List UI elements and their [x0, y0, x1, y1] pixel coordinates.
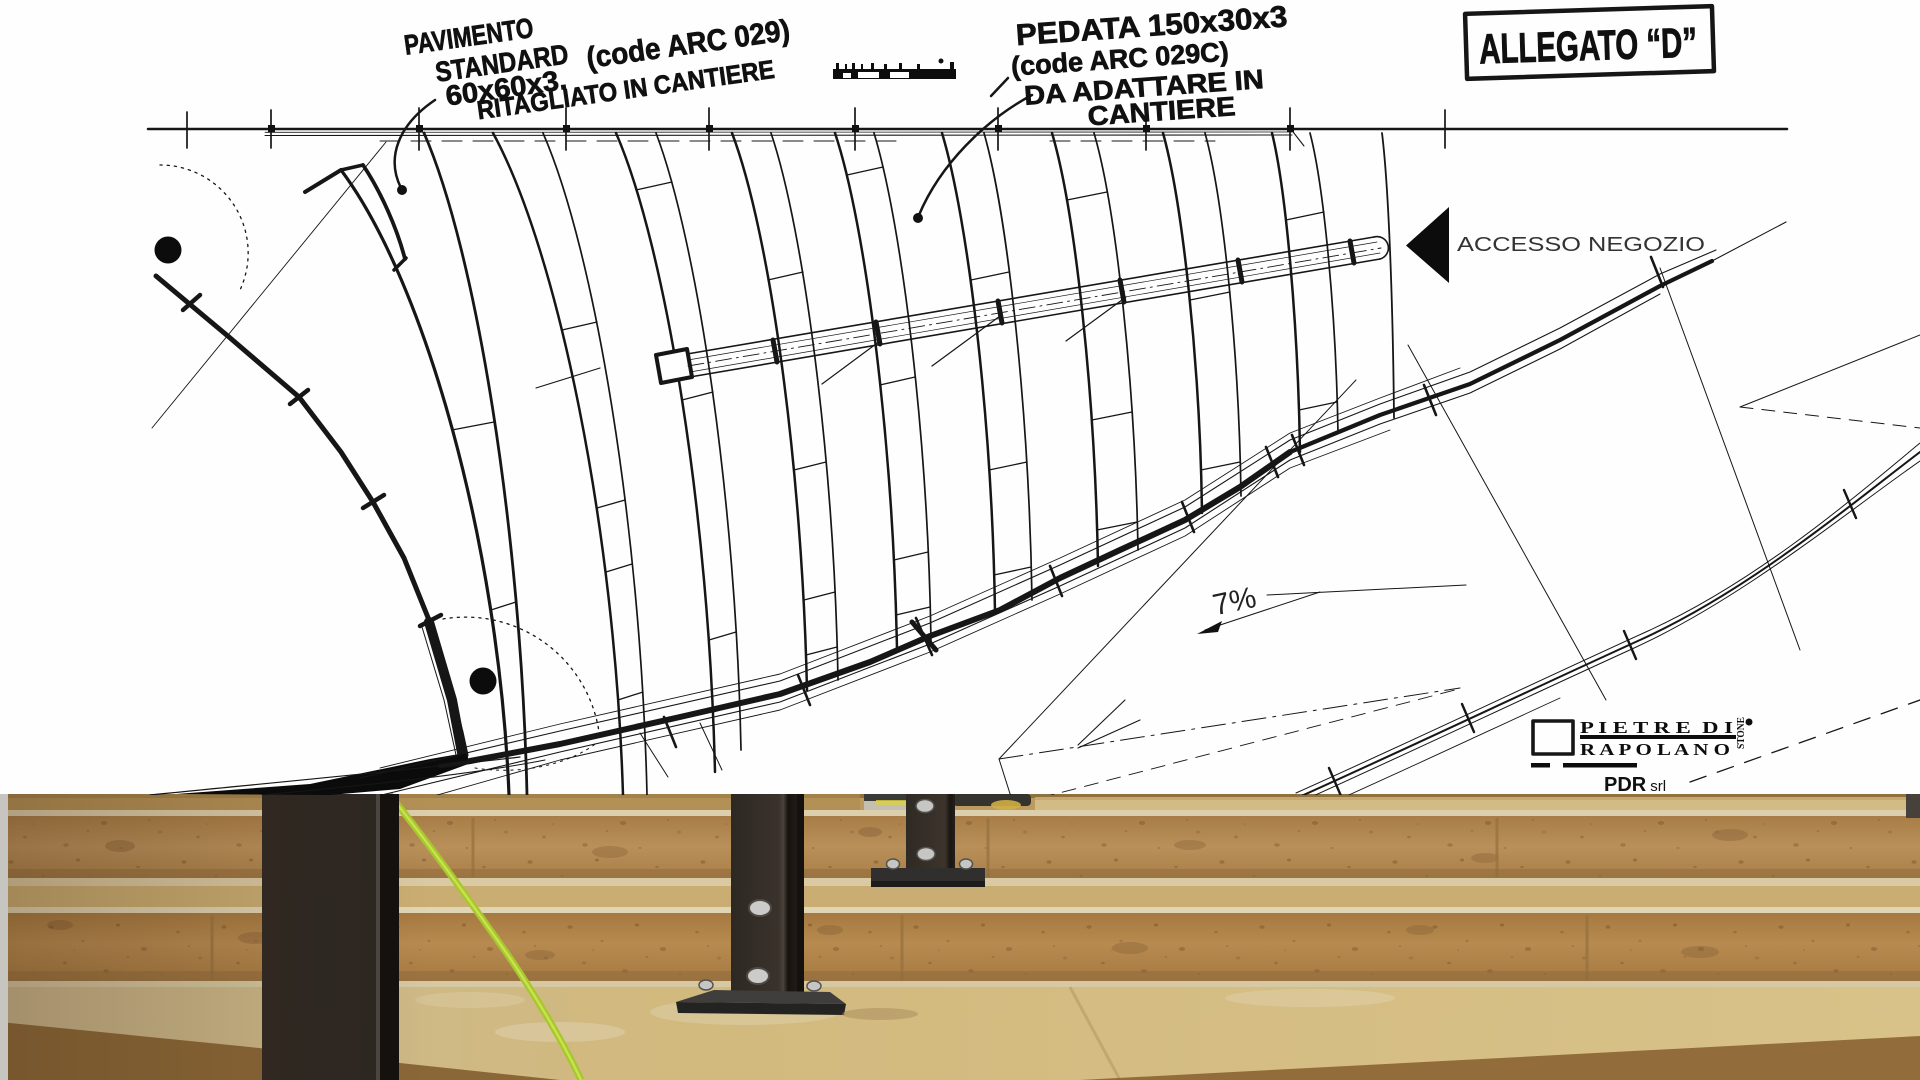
svg-text:PDRsrl: PDRsrl	[1604, 774, 1666, 796]
svg-text:ALLEGATO “D”: ALLEGATO “D”	[1478, 19, 1697, 73]
svg-text:P I E T R E D I: P I E T R E D I	[1580, 718, 1734, 737]
svg-text:ACCESSO NEGOZIO: ACCESSO NEGOZIO	[1457, 234, 1705, 256]
svg-text:STONE: STONE	[1736, 717, 1747, 749]
svg-text:R A P O L A N O: R A P O L A N O	[1580, 740, 1730, 759]
